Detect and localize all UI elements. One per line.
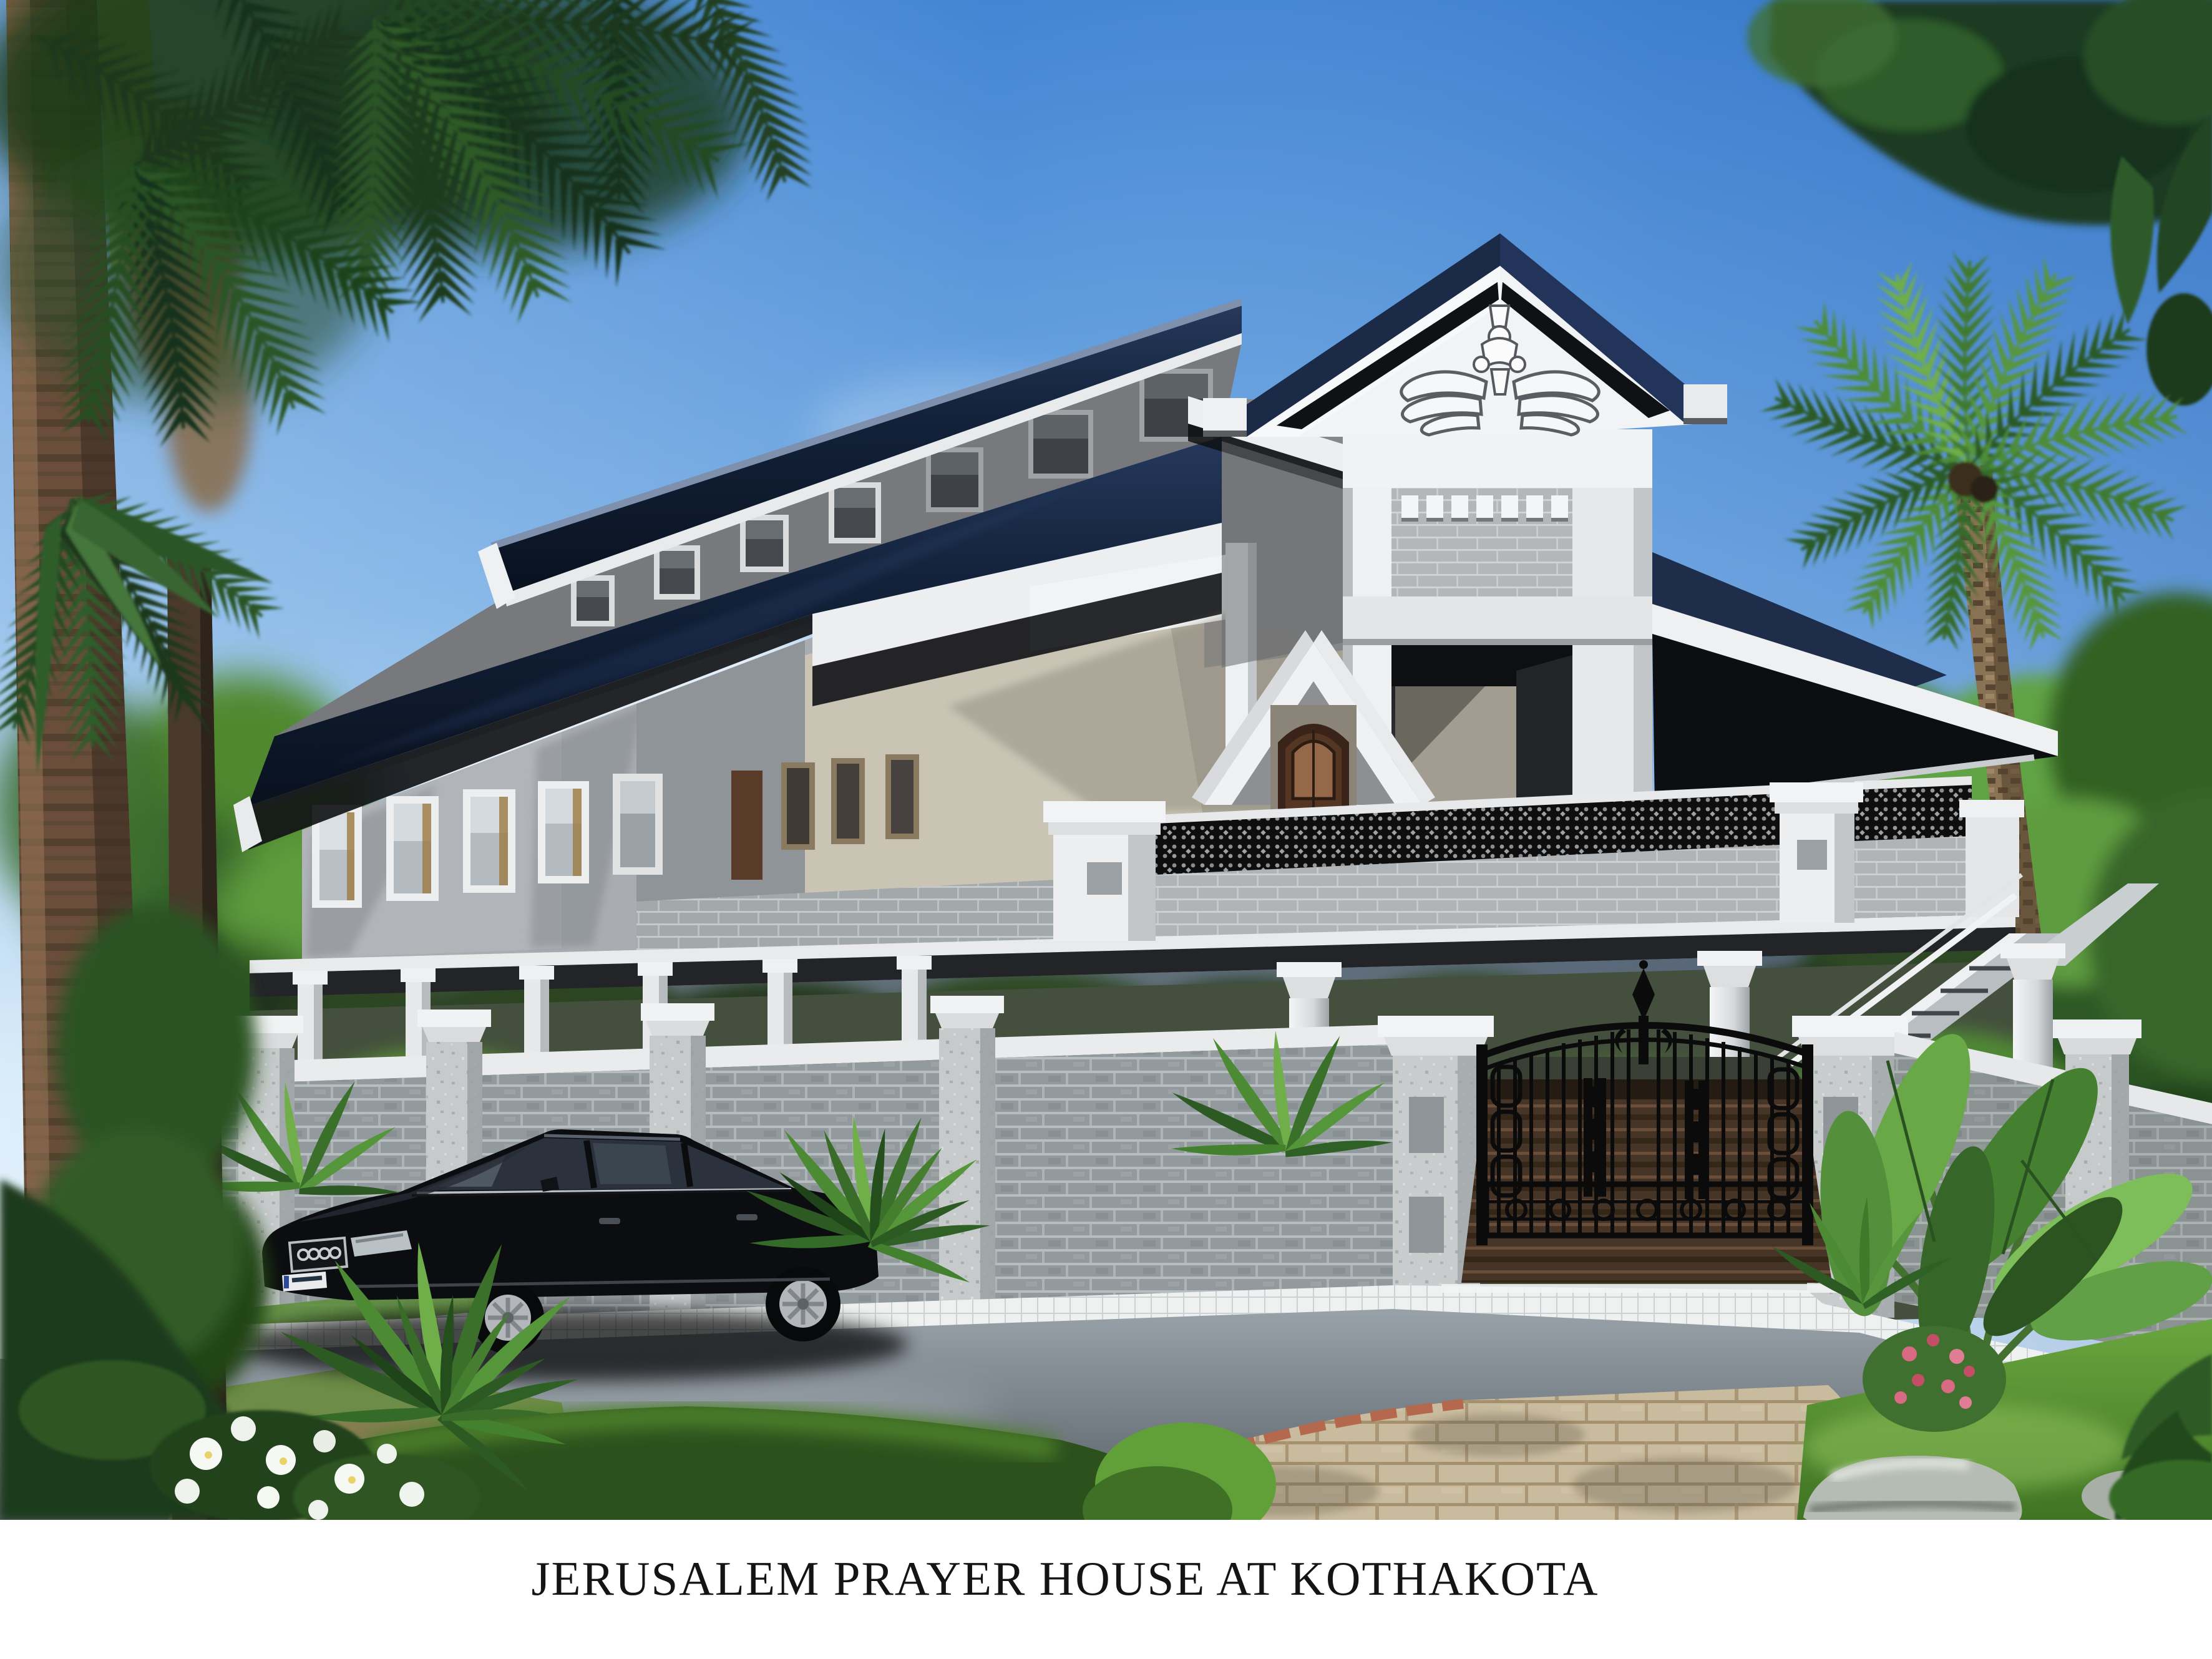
svg-text:JERUSALEM PRAYER HOUSE AT KOTH: JERUSALEM PRAYER HOUSE AT KOTHAKOTA	[532, 1552, 1599, 1605]
